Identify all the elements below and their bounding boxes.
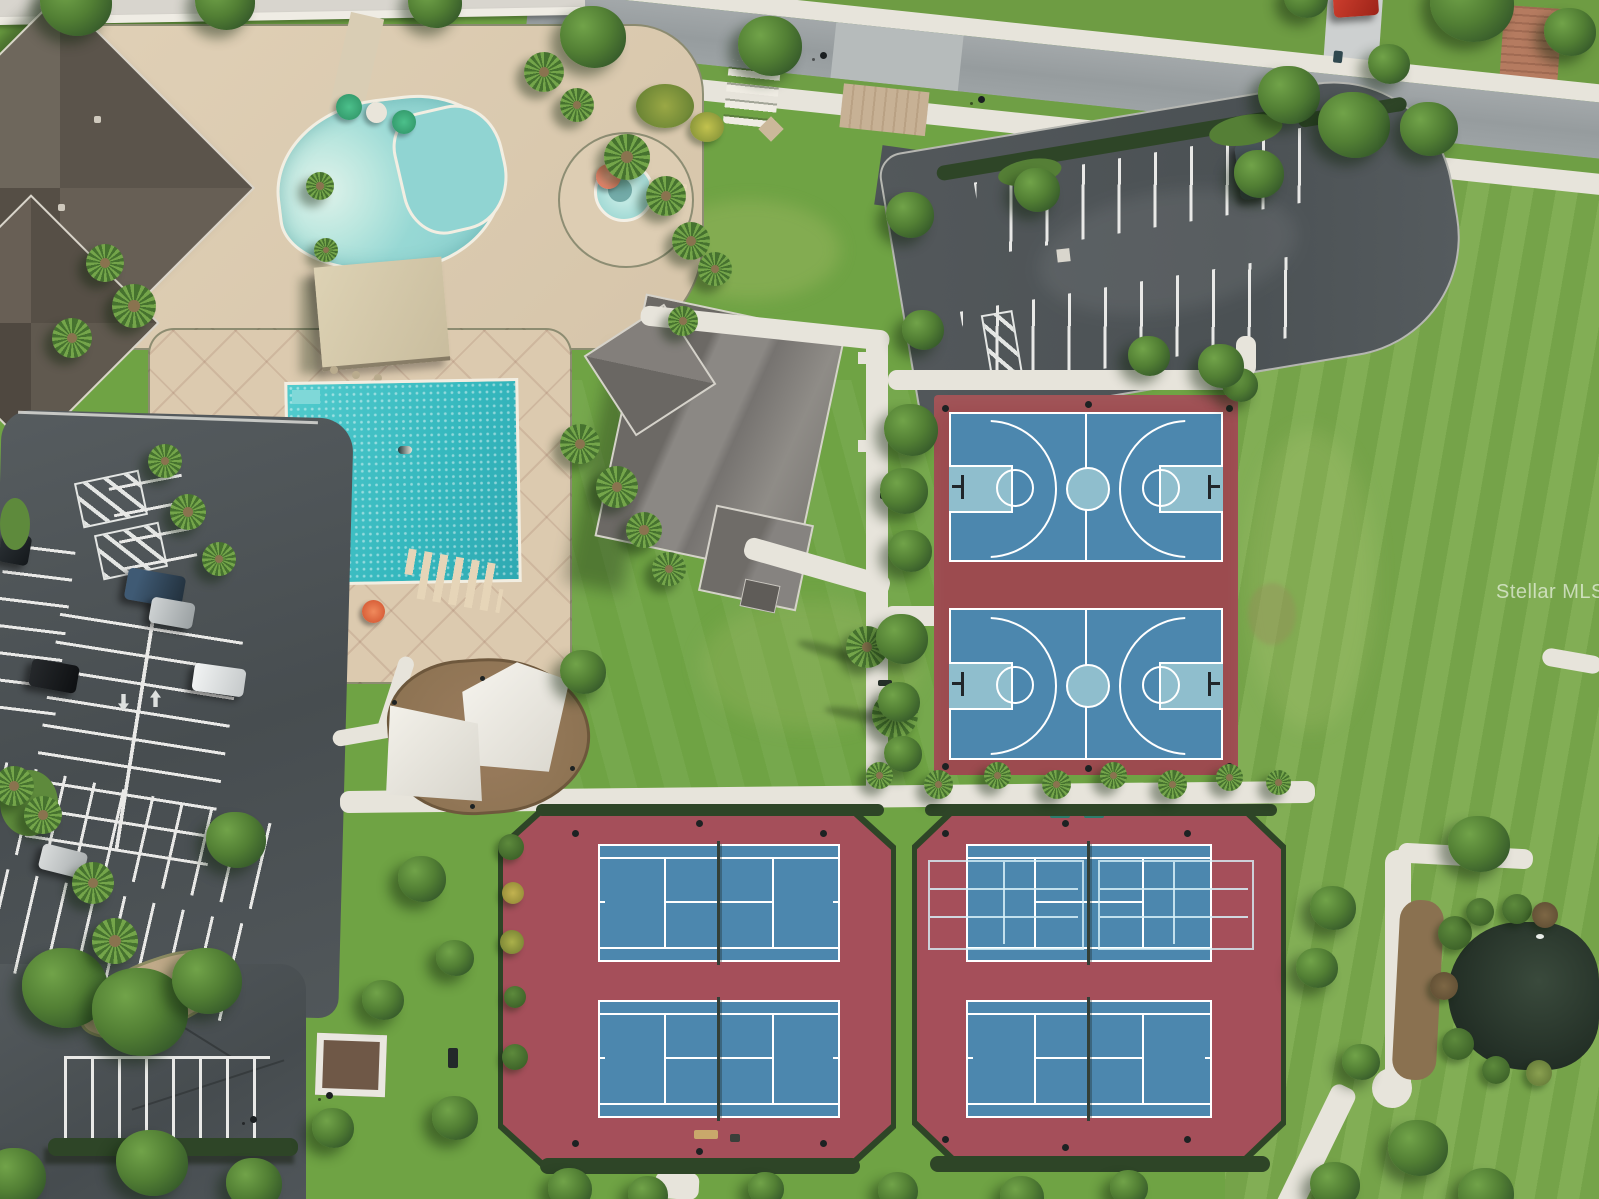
palm-tree [52,318,92,358]
sail-post [570,766,575,771]
tree [876,614,928,664]
palm-tree [984,762,1011,789]
flowering-shrub [502,882,524,904]
palm-tree [1042,770,1071,799]
palm-tree [652,552,686,586]
roof-vent [58,204,65,211]
hedge-row [540,1158,860,1174]
pond-shrub-brown [1532,902,1558,928]
pickleball-kitchen-line [1100,916,1248,918]
tree [1128,336,1170,376]
palm-tree [560,88,594,122]
court-light-pole [1062,1144,1069,1151]
court-light-pole [1085,401,1092,408]
tree [1198,344,1244,388]
court-bench [694,1130,718,1139]
tree [206,812,266,868]
court-light-pole [942,405,949,412]
flowering-shrub [500,930,524,954]
pond-shrub [1438,916,1472,950]
flowering-shrub [502,1044,528,1070]
pond-shrub [1502,894,1532,924]
tree [748,1172,784,1199]
palm-tree [1158,770,1187,799]
center-mark [598,1057,605,1059]
hedge-row [925,804,1277,816]
service-line [664,857,666,949]
street-lamp [820,52,827,59]
court-light-pole [1226,405,1233,412]
pickleball-center-line [1003,862,1005,944]
tree [1296,948,1338,988]
tree [1310,1162,1360,1199]
watermark: Stellar MLS [1496,581,1599,604]
court-light-pole [942,1136,949,1143]
basketball-hoop-arm [952,485,962,488]
basketball-hoop-arm [952,682,962,685]
center-mark [833,1057,840,1059]
court-light-pole [942,830,949,837]
tree [738,16,802,76]
tree [1448,816,1510,872]
tree [432,1096,478,1140]
basketball-hoop-arm [1210,682,1220,685]
pickleball-lines [928,860,1084,950]
pond-shrub [1482,1056,1510,1084]
tree [1000,1176,1044,1199]
tennis-court [598,844,840,962]
palm-tree [1266,770,1291,795]
pickleball-kitchen-line [1100,888,1248,890]
service-line [772,1013,774,1105]
basketball-complex [934,395,1238,775]
court-equipment [730,1134,740,1142]
worn-dirt-spot [1248,583,1296,645]
palm-tree [524,52,564,92]
palm-tree [866,762,893,789]
pool-island-plant [306,172,334,200]
tree [362,980,404,1020]
service-line [664,1013,666,1105]
pond-shrub [1526,1060,1552,1086]
center-mark [1205,1057,1212,1059]
palm-tree [668,306,698,336]
tree [172,948,242,1014]
red-car [1332,0,1379,18]
center-mark [598,901,605,903]
pond-bird [1536,934,1544,939]
pool-island-plant [314,238,338,262]
pickleball-kitchen-line [930,916,1078,918]
tree [1110,1170,1148,1199]
palm-tree [560,424,600,464]
tree [888,530,932,572]
court-light-pole [942,763,949,770]
hedge-row [536,804,884,816]
tree [902,310,944,350]
tree [878,682,920,722]
court-light-pole [1184,830,1191,837]
center-circle [1066,664,1110,708]
entrance-shrub-bed [636,84,694,128]
tree [880,468,928,514]
tree [436,940,474,976]
tennis-pickleball-court [966,844,1212,962]
tree [886,192,934,238]
utility-enclosure [315,1033,387,1097]
tree [1014,168,1060,212]
tree [884,404,938,456]
palm-tree [646,176,686,216]
palm-tree [604,134,650,180]
court-light-pole [696,820,703,827]
palm-tree [1216,764,1243,791]
walkway [888,370,1248,390]
palm-tree [112,284,156,328]
court-light-pole [572,1140,579,1147]
pond-shrub [1442,1028,1474,1060]
palm-tree [92,918,138,964]
tree [116,1130,188,1196]
pond-shrub-brown [1430,972,1458,1000]
tree [878,1172,918,1199]
palm-tree [698,252,732,286]
palm-tree [924,770,953,799]
parking-lamp [250,1116,257,1123]
tennis-court [598,1000,840,1118]
tree [560,6,626,68]
tree [1368,44,1410,84]
tree [1258,66,1320,124]
sail-post [470,804,475,809]
tree [1388,1120,1448,1176]
pond-shrub [1466,898,1494,926]
flowering-shrub [498,834,524,860]
tree [1318,92,1390,158]
entrance-paver-apron [839,83,929,136]
palm-tree [596,466,638,508]
court-light-pole [696,1148,703,1155]
court-light-pole [820,830,827,837]
tennis-court [966,1000,1212,1118]
roof-vent [94,116,101,123]
center-circle [1066,467,1110,511]
landscape-island [0,498,30,550]
tennis-complex-left [498,806,896,1168]
palm-tree [202,542,236,576]
palm-tree [626,512,662,548]
entrance-shrub [690,112,724,142]
tree [1310,886,1356,930]
street-lamp [978,96,985,103]
court-light-pole [1184,1136,1191,1143]
tree [1342,1044,1380,1080]
sail-post [392,700,397,705]
service-line [772,857,774,949]
center-mark [833,901,840,903]
parking-lamp [326,1092,333,1099]
tree [398,856,446,902]
pool-umbrella-white [366,102,387,123]
pool-umbrella-green [336,94,362,120]
palm-tree [170,494,206,530]
center-mark [966,1057,973,1059]
pickleball-center-line [1173,862,1175,944]
service-line [1034,1013,1036,1105]
service-line [1142,1013,1144,1105]
bench-pad [858,440,870,452]
bench-pad [858,352,870,364]
palm-tree [1100,762,1127,789]
sail-post [480,676,485,681]
palm-tree [148,444,182,478]
pickleball-kitchen-line [930,888,1078,890]
palm-tree [24,796,62,834]
tree [560,650,606,694]
net-shadow [720,1000,722,1118]
net-shadow [1090,844,1092,962]
tree [312,1108,354,1148]
tree [1400,102,1458,156]
pool-floater [398,446,412,454]
hedge-row [930,1156,1270,1172]
palm-tree [72,862,114,904]
tree [1234,150,1284,198]
court-light-pole [1085,765,1092,772]
cabana-roof [314,257,451,372]
tree [1544,8,1596,56]
aerial-photo-community-amenity-center: Stellar MLS [0,0,1599,1199]
net-shadow [720,844,722,962]
pool-umbrella-green [392,110,416,134]
lap-pool-steps [292,390,320,404]
basketball-court [949,608,1223,760]
cabana-table [330,366,338,374]
court-light-pole [1062,820,1069,827]
court-light-pole [572,830,579,837]
drain-pad [1056,248,1070,262]
net-shadow [1090,1000,1092,1118]
basketball-court [949,412,1223,562]
tennis-complex-right [912,806,1286,1164]
flowering-shrub [504,986,526,1008]
basketball-hoop-arm [1210,485,1220,488]
pickleball-lines [1098,860,1254,950]
palm-tree [86,244,124,282]
court-light-pole [820,1140,827,1147]
dry-patch [1245,430,1375,730]
trash-bin [448,1048,458,1068]
trash-bin-dark [1333,50,1343,63]
cabana-table [352,371,360,379]
